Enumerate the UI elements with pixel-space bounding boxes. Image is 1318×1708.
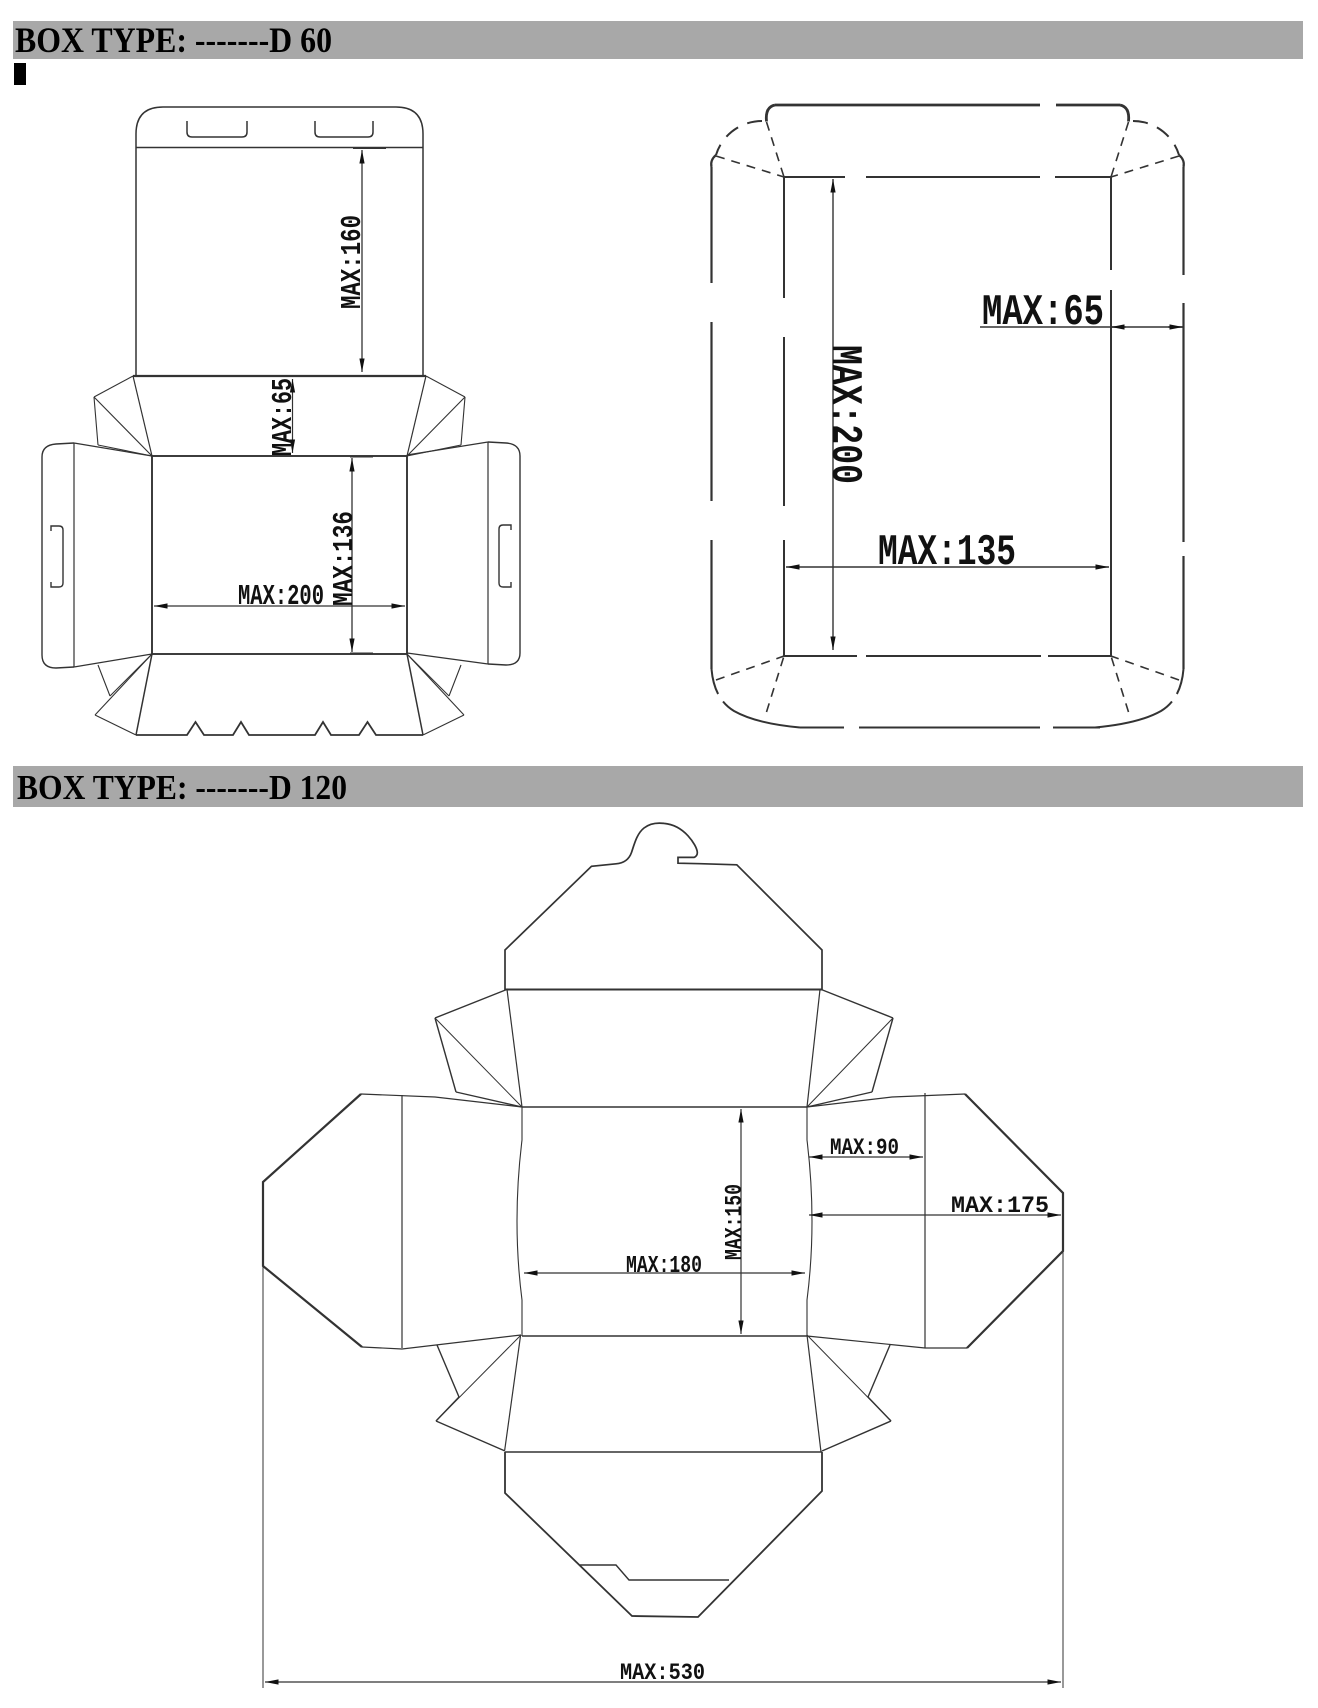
svg-text:MAX:90: MAX:90: [830, 1135, 899, 1161]
svg-text:MAX:175: MAX:175: [951, 1193, 1049, 1219]
svg-text:MAX:65: MAX:65: [267, 378, 300, 456]
svg-text:MAX:200: MAX:200: [238, 580, 324, 613]
svg-text:MAX:135: MAX:135: [878, 528, 1016, 578]
svg-text:MAX:65: MAX:65: [982, 288, 1104, 338]
svg-text:MAX:530: MAX:530: [620, 1660, 705, 1686]
svg-text:MAX:180: MAX:180: [626, 1253, 702, 1280]
svg-text:BOX TYPE: -------D 60: BOX TYPE: -------D 60: [15, 20, 332, 60]
svg-text:MAX:150: MAX:150: [722, 1184, 749, 1260]
svg-text:MAX:160: MAX:160: [336, 215, 369, 309]
svg-text:BOX TYPE: -------D 120: BOX TYPE: -------D 120: [17, 768, 347, 807]
svg-text:MAX:136: MAX:136: [328, 511, 361, 606]
svg-text:MAX:200: MAX:200: [819, 345, 869, 484]
